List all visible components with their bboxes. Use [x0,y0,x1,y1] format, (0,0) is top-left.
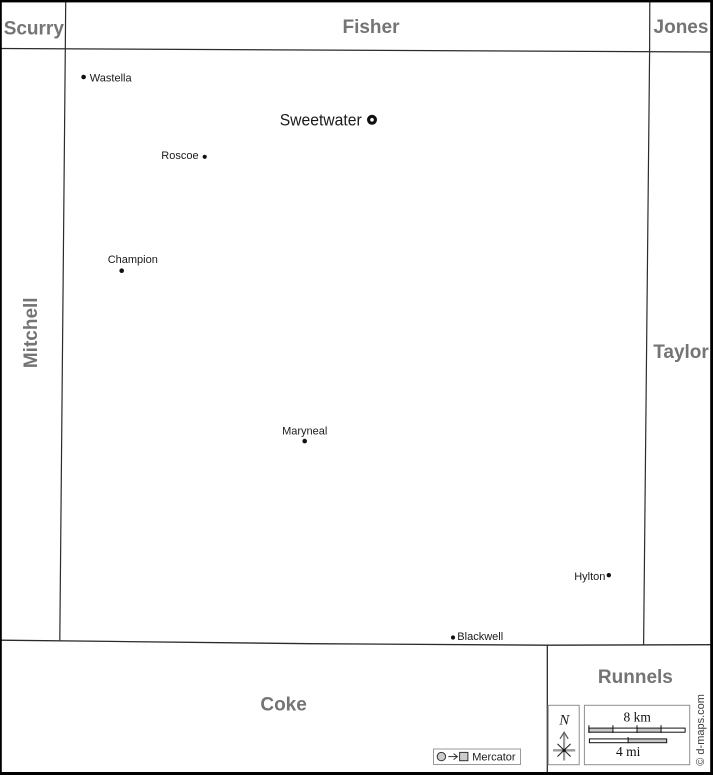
svg-text:Sweetwater: Sweetwater [280,110,362,129]
svg-text:8 km: 8 km [624,710,652,725]
svg-text:Champion: Champion [108,254,158,266]
svg-text:4 mi: 4 mi [616,744,641,759]
svg-text:Mercator: Mercator [472,752,516,764]
svg-text:Runnels: Runnels [598,667,673,688]
svg-text:Blackwell: Blackwell [457,631,503,643]
svg-text:Hylton: Hylton [574,571,605,583]
svg-text:Mitchell: Mitchell [21,297,42,368]
svg-text:Taylor: Taylor [653,342,709,363]
svg-text:Fisher: Fisher [342,17,400,38]
svg-text:© d-maps.com: © d-maps.com [695,694,707,766]
svg-text:Coke: Coke [260,695,306,716]
svg-text:Scurry: Scurry [4,19,65,40]
svg-text:Jones: Jones [654,17,709,38]
svg-text:N: N [558,712,570,728]
svg-text:Maryneal: Maryneal [282,425,327,437]
svg-text:Roscoe: Roscoe [161,150,198,162]
svg-text:Wastella: Wastella [90,72,133,84]
